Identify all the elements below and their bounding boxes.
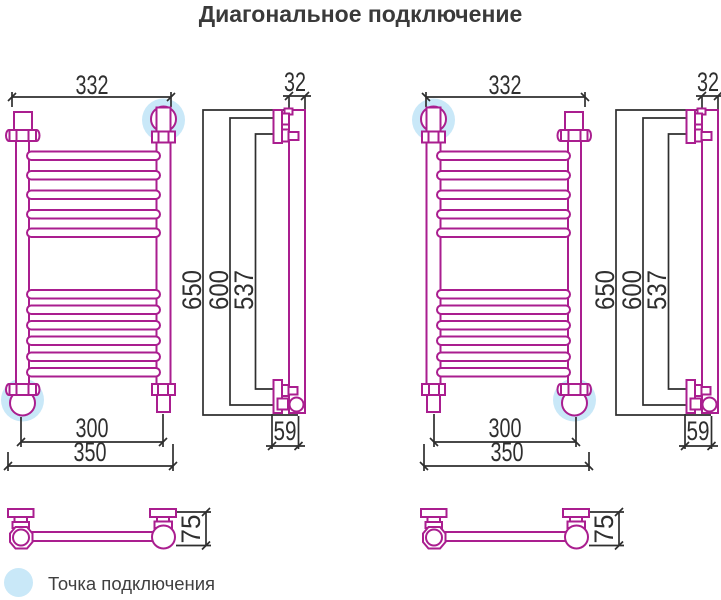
dim-height-overall: 650 [590, 270, 620, 310]
dim-bottom-width-outer: 350 [74, 437, 107, 467]
dim-pipe-width: 32 [697, 67, 719, 97]
dim-pipe-width: 32 [284, 67, 306, 97]
variant-left: 332 300 350 32 650 600 537 59 75 [1, 67, 311, 550]
legend-label: Точка подключения [48, 573, 215, 595]
dim-bottom-width-outer: 350 [491, 437, 524, 467]
dim-depth: 75 [176, 515, 206, 544]
connection-point-marker [4, 568, 33, 597]
dim-height-inner: 537 [229, 270, 259, 310]
dim-wall-offset: 59 [687, 416, 710, 446]
dim-wall-offset: 59 [274, 416, 297, 446]
dim-height-inner: 537 [642, 270, 672, 310]
dim-top-width: 332 [489, 70, 522, 100]
dim-top-width: 332 [76, 70, 109, 100]
dim-height-overall: 650 [177, 270, 207, 310]
variant-right: 332 300 350 32 650 600 537 59 75 [412, 67, 721, 550]
dim-depth: 75 [589, 515, 619, 544]
towel-rail-diagram-page: Диагональное подключение [0, 0, 721, 600]
technical-drawing: 332 300 350 32 650 600 537 59 75 332 300… [0, 0, 721, 600]
